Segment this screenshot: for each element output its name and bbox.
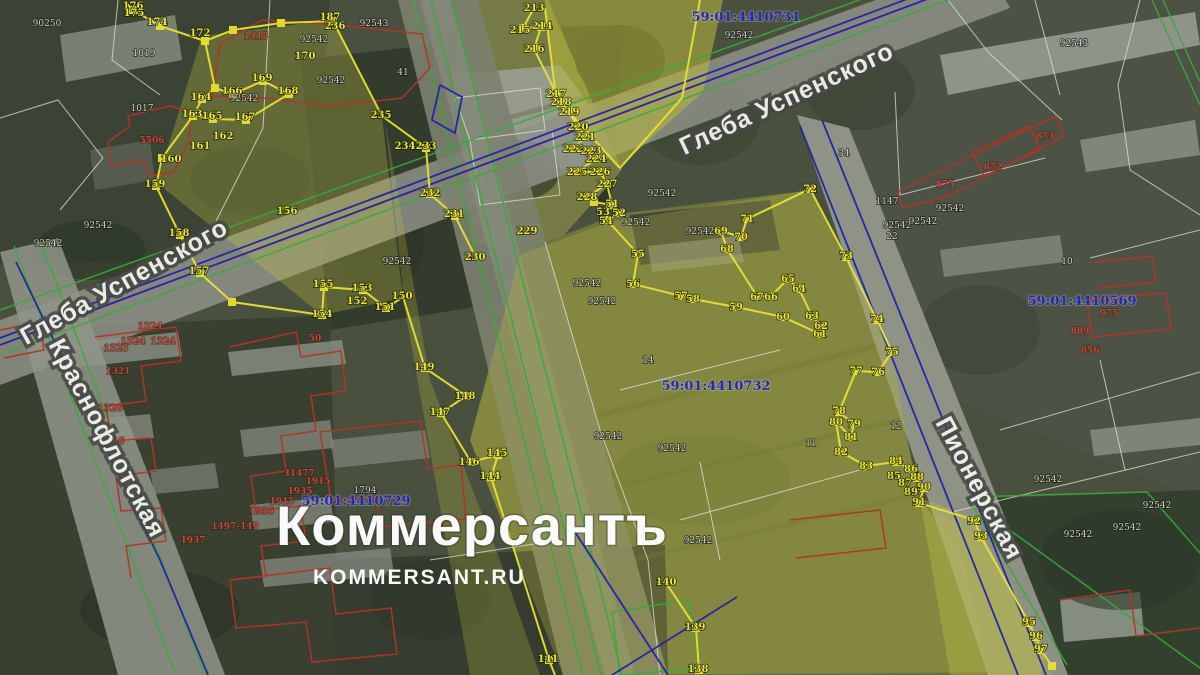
vertex-number-label: 157: [189, 266, 210, 277]
vertex-number-label: 159: [145, 179, 166, 190]
cadastral-satellite-map: 1761751741721872361701691681661641631651…: [0, 0, 1200, 675]
vertex-number-label: 95: [1022, 617, 1036, 628]
vertex-number-label: 81: [844, 432, 858, 443]
parcel-number-label: 92542: [883, 221, 912, 231]
parcel-number-label: 11: [805, 439, 816, 449]
cadastral-quarter-number: 59:01:4410569: [1027, 294, 1136, 309]
vertex-number-label: 151: [375, 302, 396, 313]
vertex-number-label: 74: [870, 314, 884, 325]
parcel-number-label: 92542: [230, 94, 259, 104]
vertex-number-label: 72: [803, 184, 817, 195]
vertex-number-label: 75: [885, 347, 899, 358]
kommersant-site-text: KOMMERSANT.RU: [313, 566, 526, 589]
vertex-number-label: 77: [849, 366, 863, 377]
vertex-number-label: 97: [1034, 644, 1048, 655]
vertex-number-label: 168: [278, 86, 299, 97]
parcel-number-label: 92543: [1060, 39, 1089, 49]
parcel-number-label: 92542: [588, 297, 617, 307]
building-number-label: 1937: [180, 536, 205, 546]
building-number-label: 872: [984, 163, 1003, 173]
building-number-label: 1497-149: [211, 522, 259, 532]
vertex-number-label: 62: [814, 321, 828, 332]
vertex-number-label: 167: [235, 112, 256, 123]
vertex-number-label: 58: [686, 294, 700, 305]
vertex-number-label: 78: [832, 406, 846, 417]
vertex-number-label: 163: [182, 109, 203, 120]
vertex-number-label: 156: [277, 206, 298, 217]
vertex-number-label: 230: [465, 252, 486, 263]
building-number-label: 1321: [105, 367, 130, 377]
vertex-number-label: 175: [124, 8, 145, 19]
parcel-number-label: 92542: [909, 217, 938, 227]
vertex-number-label: 54: [599, 216, 613, 227]
building-number-label: 1324: [137, 322, 162, 332]
vertex-number-label: 226: [590, 167, 611, 178]
parcel-number-label: 92542: [84, 221, 113, 231]
vertex-number-label: 82: [834, 447, 848, 458]
vertex-number-label: 215: [510, 25, 531, 36]
parcel-number-label: 12: [890, 422, 901, 432]
vertex-number-label: 147: [430, 407, 451, 418]
parcel-number-label: 92542: [1113, 523, 1142, 533]
parcel-number-label: 92542: [622, 218, 651, 228]
vertex-number-label: 84: [889, 456, 903, 467]
parcel-number-label: 92542: [684, 536, 713, 546]
building-number-label: 975: [1100, 309, 1119, 319]
building-number-label: 889: [1071, 327, 1090, 337]
vertex-number-label: 155: [313, 279, 334, 290]
building-number-label: 873: [1036, 132, 1055, 142]
vertex-number-label: 227: [597, 179, 618, 190]
vertex-number-label: 67: [750, 292, 764, 303]
parcel-number-label: 34: [838, 149, 850, 159]
vertex-number-label: 90: [917, 482, 931, 493]
vertex-number-label: 66: [764, 292, 778, 303]
kommersant-logo-text: Коммерсантъ: [276, 494, 668, 557]
parcel-number-label: 92542: [1143, 501, 1172, 511]
vertex-number-label: 152: [347, 296, 368, 307]
vertex-number-label: 162: [213, 131, 234, 142]
vertex-number-label: 146: [459, 457, 480, 468]
vertex-number-label: 65: [781, 274, 795, 285]
parcel-number-label: 92542: [1064, 530, 1093, 540]
building-number-label: 875: [936, 180, 955, 190]
vertex-number-label: 221: [575, 132, 596, 143]
vertex-number-label: 64: [792, 284, 806, 295]
vertex-number-label: 144: [480, 471, 501, 482]
vertex-number-label: 56: [626, 279, 640, 290]
vertex-number-label: 73: [839, 251, 853, 262]
parcel-number-label: 92542: [594, 432, 623, 442]
vertex-number-label: 63: [805, 311, 819, 322]
parcel-number-label: 1147: [876, 197, 899, 207]
vertex-number-label: 149: [414, 362, 435, 373]
parcel-number-label: 92542: [1034, 475, 1063, 485]
parcel-number-label: 92542: [383, 257, 412, 267]
vertex-number-label: 160: [161, 154, 182, 165]
vertex-number-label: 233: [416, 141, 437, 152]
parcel-number-label: 22: [886, 232, 897, 242]
vertex-number-label: 234: [395, 141, 416, 152]
vertex-number-label: 213: [524, 3, 545, 14]
vertex-number-label: 229: [517, 226, 538, 237]
parcel-number-label: 92542: [936, 204, 965, 214]
vertex-number-label: 83: [859, 461, 873, 472]
parcel-number-label: 92542: [648, 189, 677, 199]
vertex-number-label: 150: [392, 291, 413, 302]
parcel-number-label: 92542: [300, 35, 329, 45]
vertex-number-label: 140: [656, 577, 677, 588]
vertex-number-label: 138: [688, 664, 709, 675]
building-number-label: 5506: [139, 136, 164, 146]
vertex-number-label: 161: [190, 141, 211, 152]
vertex-number-label: 164: [191, 92, 212, 103]
vertex-number-label: 69: [714, 226, 728, 237]
building-number-label: 1935: [249, 507, 274, 517]
vertex-number-label: 59: [729, 302, 743, 313]
vertex-number-label: 174: [147, 17, 168, 28]
vertex-number-label: 71: [740, 214, 754, 225]
building-number-label: 1915: [305, 477, 330, 487]
vertex-number-label: 219: [559, 107, 580, 118]
parcel-number-label: 92543: [360, 19, 389, 29]
vertex-number-label: 169: [252, 73, 273, 84]
vertex-number-label: 70: [734, 232, 748, 243]
cadastral-quarter-number: 59:01:4410732: [661, 379, 770, 394]
vertex-number-label: 172: [190, 28, 211, 39]
parcel-number-label: 92542: [317, 76, 346, 86]
vertex-number-label: 216: [524, 44, 545, 55]
vertex-number-label: 79: [847, 419, 861, 430]
building-number-label: 1324: [150, 337, 175, 347]
vertex-number-label: 60: [776, 312, 790, 323]
cadastral-map-screenshot: 1761751741721872361701691681661641631651…: [0, 0, 1200, 675]
parcel-number-label: 14: [642, 356, 654, 366]
vertex-number-label: 224: [586, 154, 607, 165]
vertex-number-label: 231: [444, 209, 465, 220]
vertex-number-label: 68: [720, 244, 734, 255]
vertex-number-label: 139: [685, 622, 706, 633]
vertex-number-label: 170: [295, 51, 316, 62]
parcel-number-label: 1017: [131, 104, 154, 114]
vertex-number-label: 145: [487, 448, 508, 459]
vertex-number-label: 228: [577, 192, 598, 203]
parcel-number-label: 92542: [34, 239, 63, 249]
building-number-label: 1415: [243, 32, 268, 42]
building-number-label: 856: [1081, 346, 1100, 356]
vertex-number-label: 225: [567, 167, 588, 178]
vertex-number-label: 214: [532, 21, 553, 32]
vertex-number-label: 235: [371, 110, 392, 121]
building-number-label: 1323: [103, 344, 128, 354]
vertex-number-label: 141: [538, 654, 559, 665]
parcel-number-label: 41: [397, 68, 408, 78]
vertex-number-label: 148: [455, 391, 476, 402]
vertex-number-label: 55: [631, 249, 645, 260]
parcel-number-label: 10: [1061, 257, 1073, 267]
vertex-number-label: 91: [912, 497, 926, 508]
building-number-label: 50: [309, 334, 322, 344]
parcel-number-label: 92542: [658, 444, 687, 454]
vertex-number-label: 236: [325, 21, 346, 32]
vertex-number-label: 232: [420, 188, 441, 199]
parcel-number-label: 92542: [573, 279, 602, 289]
vertex-number-label: 80: [829, 417, 843, 428]
vertex-number-label: 153: [352, 283, 373, 294]
vertex-number-label: 76: [871, 367, 885, 378]
parcel-number-label: 90250: [33, 19, 62, 29]
parcel-number-label: 1019: [133, 49, 156, 59]
vertex-number-label: 154: [312, 309, 333, 320]
vertex-number-label: 96: [1029, 631, 1043, 642]
cadastral-quarter-number: 59:01:4410731: [691, 10, 800, 25]
parcel-number-label: 92542: [686, 227, 715, 237]
parcel-number-label: 92542: [725, 31, 754, 41]
vertex-number-label: 165: [202, 111, 223, 122]
vertex-number-label: 93: [974, 531, 988, 542]
